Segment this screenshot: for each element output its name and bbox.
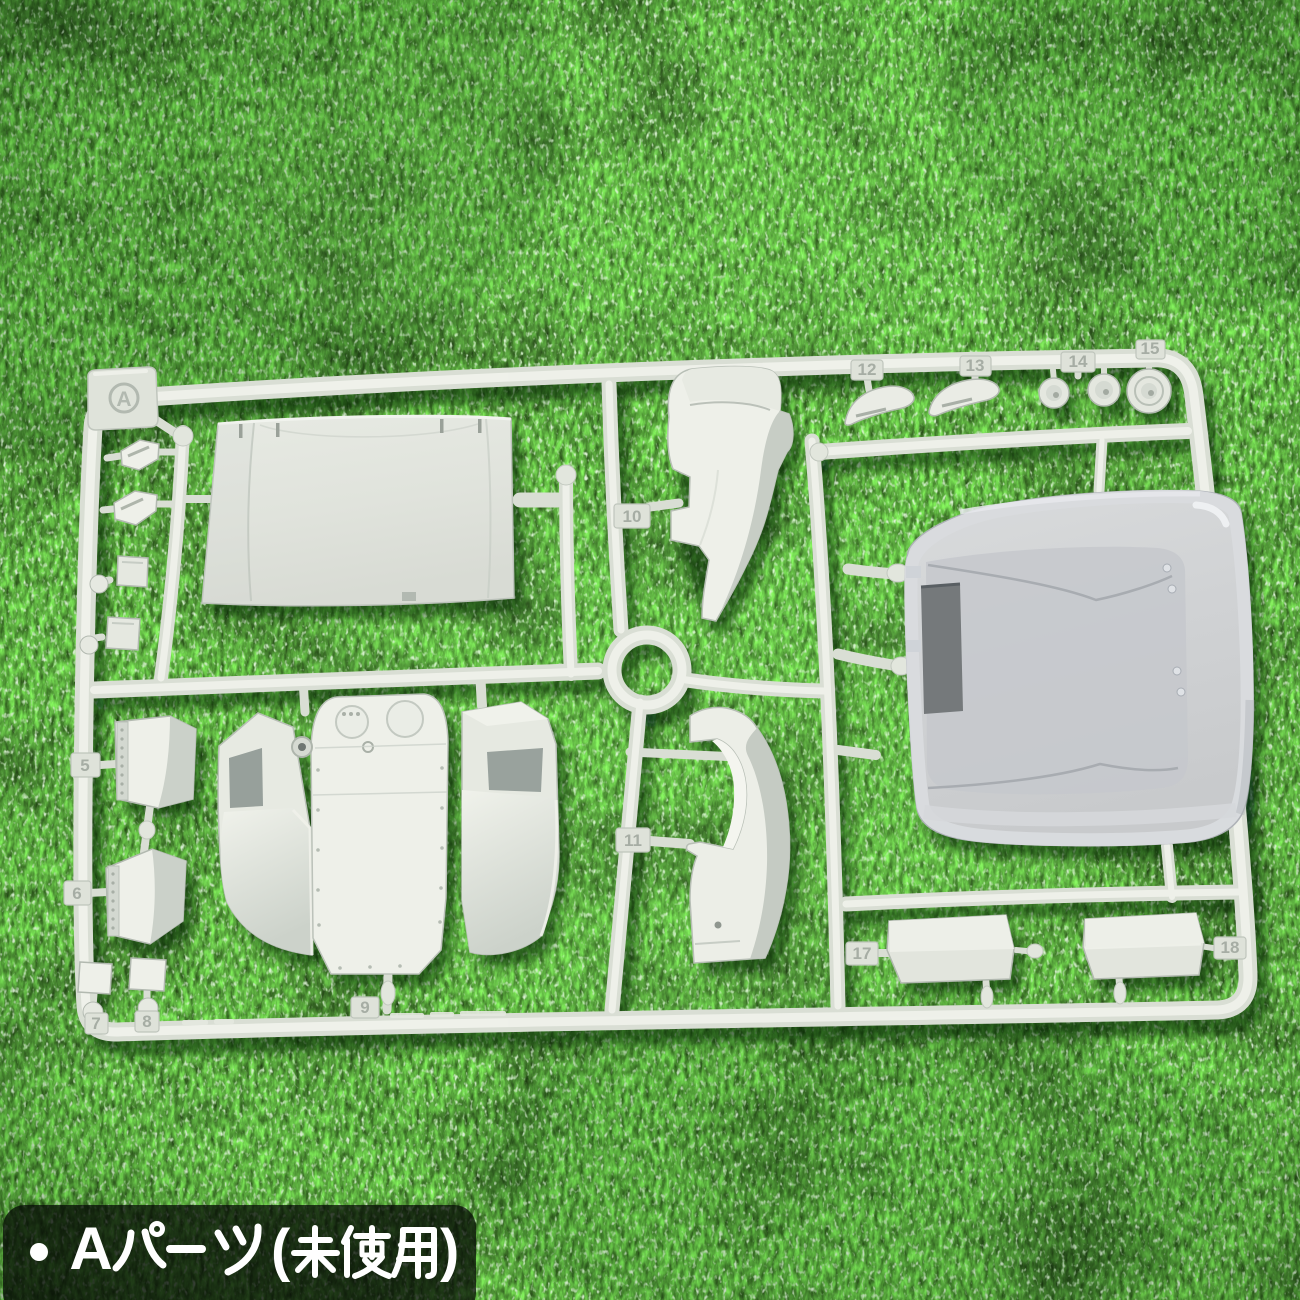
svg-text:8: 8 (142, 1012, 151, 1031)
svg-text:14: 14 (1069, 352, 1088, 371)
svg-text:(: ( (271, 1218, 291, 1283)
svg-text:15: 15 (1141, 339, 1160, 358)
svg-text:A: A (116, 388, 131, 411)
svg-text:5: 5 (80, 756, 89, 775)
svg-text:7: 7 (91, 1014, 100, 1033)
svg-text:A: A (69, 1215, 112, 1282)
svg-text:): ) (440, 1218, 459, 1283)
svg-text:18: 18 (1221, 938, 1240, 957)
svg-text:12: 12 (858, 360, 877, 379)
svg-text:9: 9 (360, 998, 369, 1017)
svg-text:17: 17 (853, 944, 872, 963)
svg-text:11: 11 (624, 831, 642, 850)
svg-text:6: 6 (72, 884, 81, 903)
svg-text:13: 13 (966, 356, 985, 375)
svg-text:10: 10 (623, 507, 642, 526)
